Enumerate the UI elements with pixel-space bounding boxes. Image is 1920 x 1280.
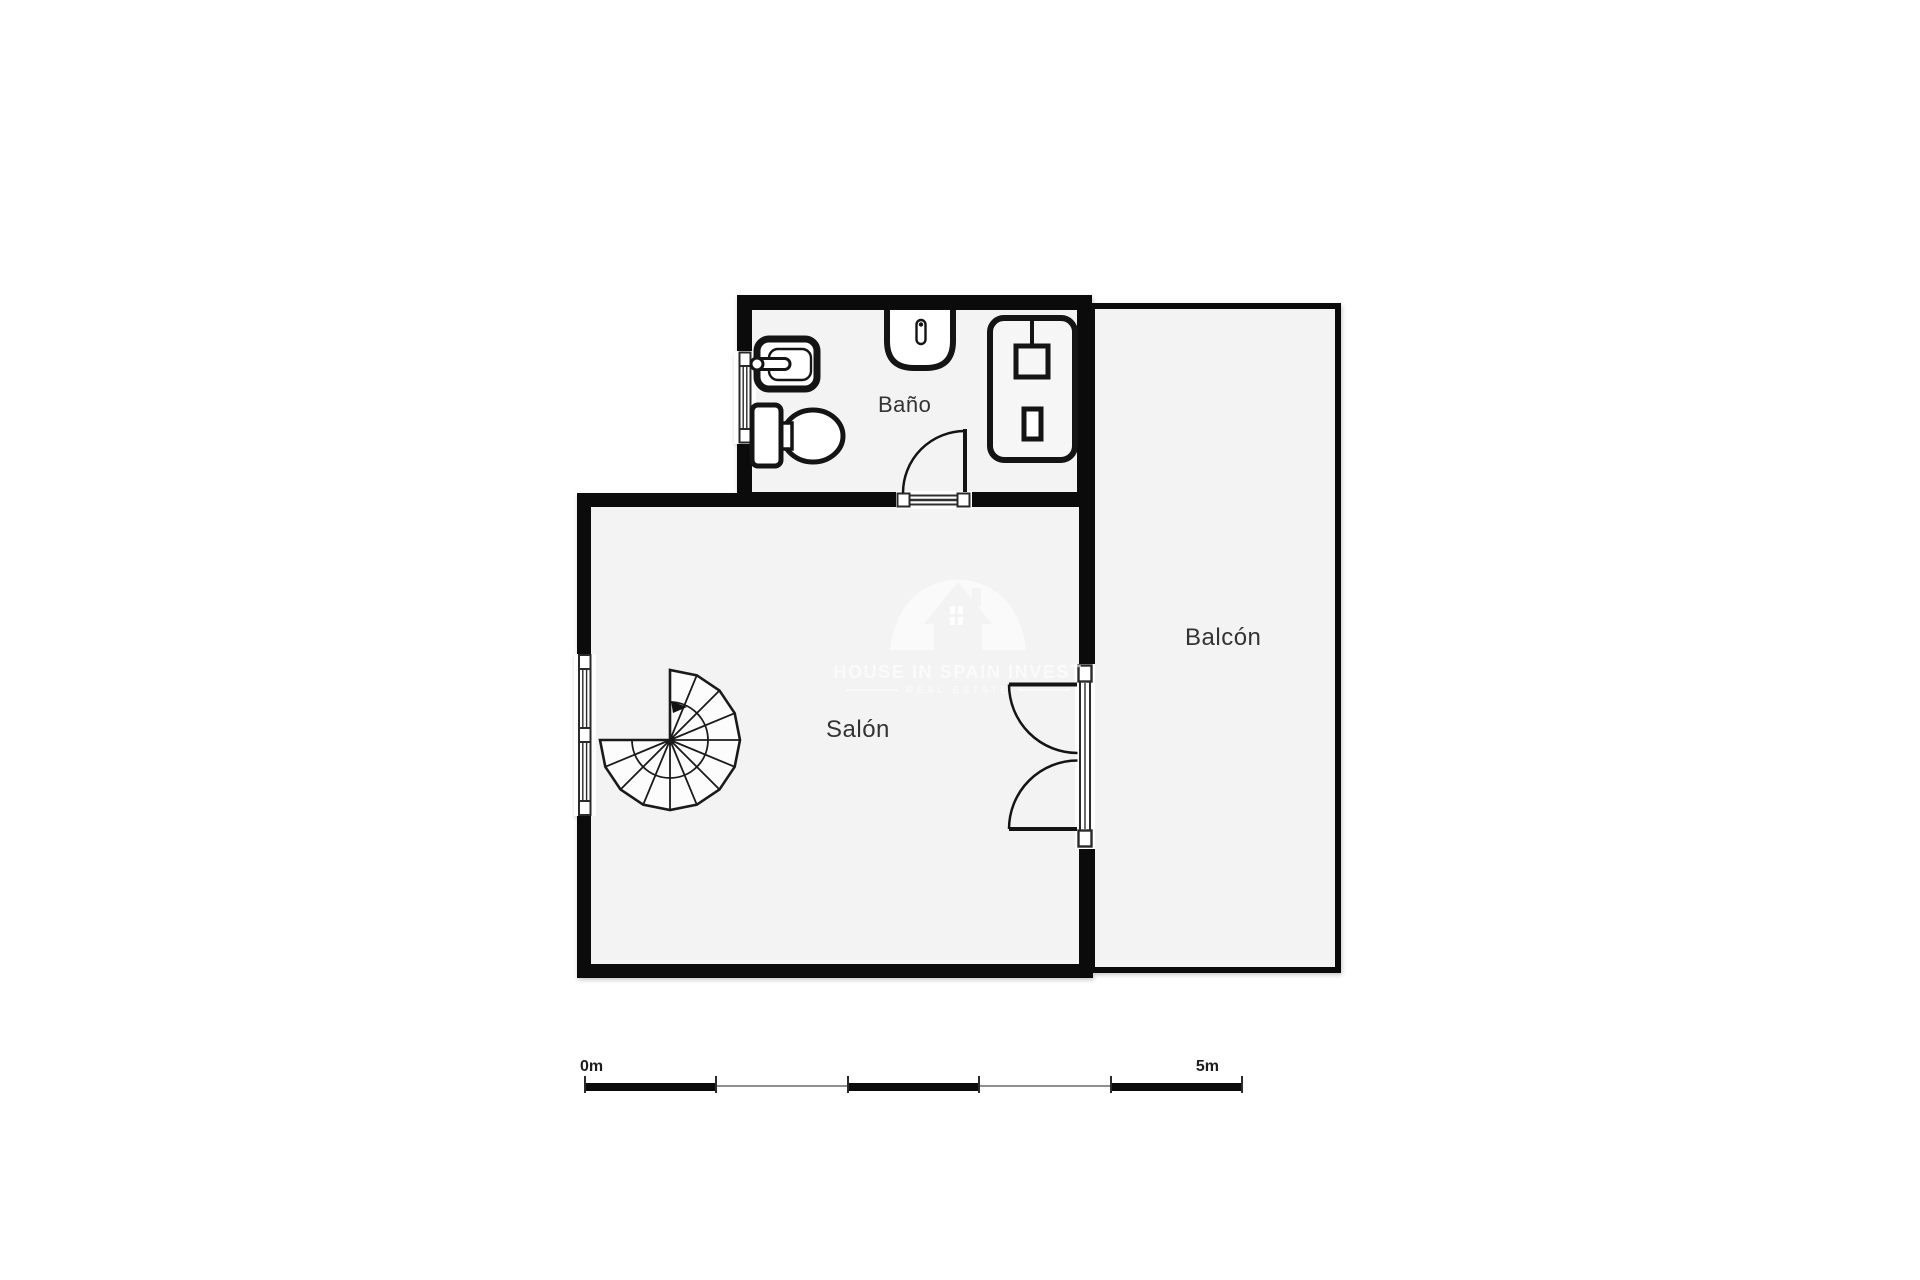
scale-bar-tick <box>584 1076 586 1093</box>
salon-window <box>574 654 596 816</box>
scale-bar-tick <box>1241 1076 1243 1093</box>
shower-icon <box>990 316 1075 460</box>
scale-end-label: 5m <box>1196 1058 1219 1076</box>
sink-icon <box>751 339 817 389</box>
scale-bar-tick <box>978 1076 980 1093</box>
floor-plan-page: HOUSE IN SPAIN INVEST REAL ESTATE Baño S… <box>0 0 1920 1280</box>
scale-bar-tick <box>847 1076 849 1093</box>
scale-start-label: 0m <box>580 1058 603 1076</box>
scale-bar: 0m 5m <box>584 1076 1243 1096</box>
scale-bar-tick <box>715 1076 717 1093</box>
room-label-bano: Baño <box>878 392 931 418</box>
washbasin-icon <box>887 310 953 368</box>
room-label-salon: Salón <box>826 716 890 744</box>
scale-bar-tick <box>1110 1076 1112 1093</box>
scale-bar-segment <box>847 1083 978 1091</box>
toilet-icon <box>752 405 843 466</box>
room-label-balcon: Balcón <box>1185 624 1261 652</box>
scale-bar-segment <box>1110 1083 1241 1091</box>
scale-bar-segment <box>584 1083 715 1091</box>
